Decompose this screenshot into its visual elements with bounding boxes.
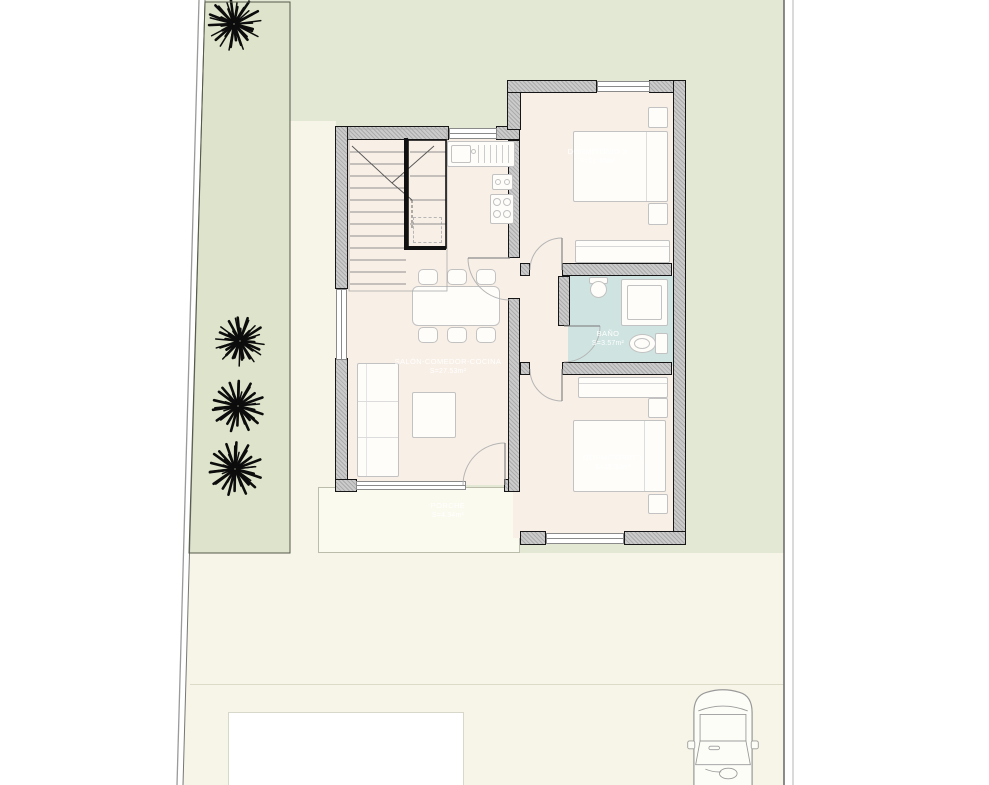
garden-strip-outline <box>189 2 290 553</box>
floor-plan: DORMITORIO 2 S=12.16m² BAÑO S=3.57m² SAL… <box>0 0 989 785</box>
boundary-left-outer <box>177 0 199 785</box>
plot-boundary <box>0 0 989 785</box>
